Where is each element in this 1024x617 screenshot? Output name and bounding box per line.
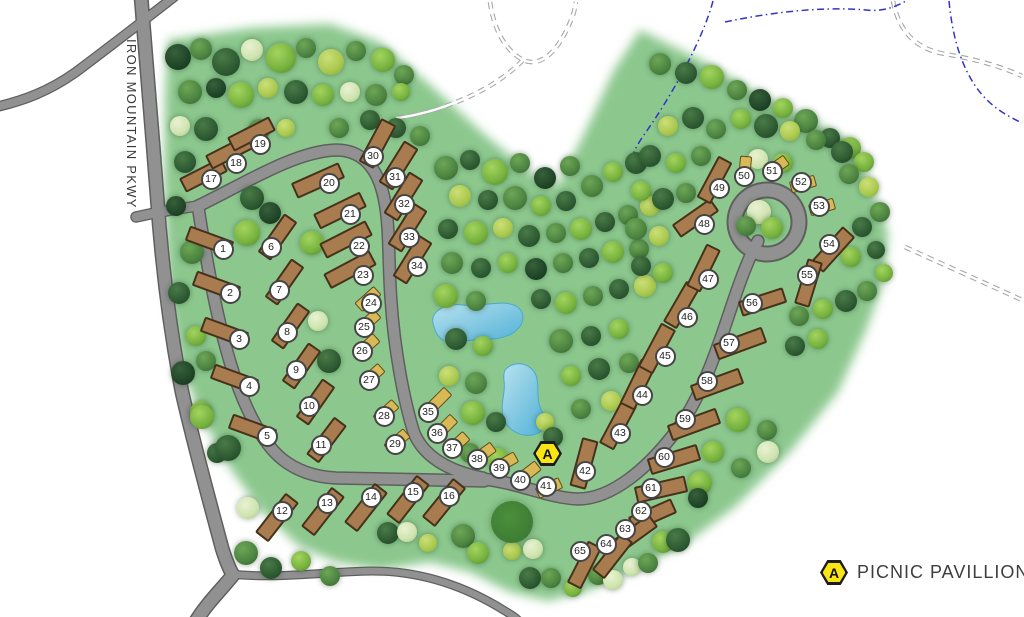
site-64-number: 64	[596, 534, 617, 555]
site-61-number: 61	[641, 478, 662, 499]
site-55-number: 55	[797, 265, 818, 286]
site-35-number: 35	[418, 402, 439, 423]
site-32-number: 32	[394, 194, 415, 215]
site-11-number: 11	[311, 435, 332, 456]
site-54-number: 54	[819, 234, 840, 255]
site-58-number: 58	[697, 371, 718, 392]
site-8-number: 8	[277, 322, 298, 343]
site-60-number: 60	[654, 447, 675, 468]
site-41-number: 41	[536, 476, 557, 497]
picnic-pavilion-marker-letter: A	[542, 446, 552, 462]
site-39-number: 39	[489, 458, 510, 479]
site-1-number: 1	[213, 239, 234, 260]
site-42-number: 42	[575, 461, 596, 482]
site-27-number: 27	[359, 370, 380, 391]
site-53-number: 53	[809, 196, 830, 217]
site-10-number: 10	[299, 396, 320, 417]
site-47-number: 47	[698, 269, 719, 290]
site-23-number: 23	[353, 265, 374, 286]
site-56-number: 56	[742, 293, 763, 314]
site-31-number: 31	[385, 167, 406, 188]
site-14-number: 14	[361, 487, 382, 508]
site-20-number: 20	[319, 173, 340, 194]
site-12-number: 12	[272, 501, 293, 522]
site-18-number: 18	[226, 153, 247, 174]
campground-site-map: 1234567891011121314151617181920212223242…	[0, 0, 1024, 617]
site-21-number: 21	[340, 204, 361, 225]
site-25-number: 25	[354, 317, 375, 338]
site-2-number: 2	[220, 283, 241, 304]
site-63-number: 63	[615, 519, 636, 540]
site-5-number: 5	[257, 426, 278, 447]
site-62-number: 62	[631, 501, 652, 522]
site-30-number: 30	[363, 146, 384, 167]
picnic-pavilion-legend-icon: A	[820, 560, 848, 585]
site-6-number: 6	[261, 237, 282, 258]
legend-icon-letter: A	[829, 565, 839, 581]
site-49-number: 49	[709, 178, 730, 199]
site-48-number: 48	[694, 214, 715, 235]
site-numbers-layer: 1234567891011121314151617181920212223242…	[0, 0, 1024, 617]
site-40-number: 40	[510, 470, 531, 491]
legend: A PICNIC PAVILLION	[820, 560, 1024, 585]
site-52-number: 52	[791, 172, 812, 193]
site-17-number: 17	[201, 169, 222, 190]
site-45-number: 45	[655, 346, 676, 367]
site-38-number: 38	[467, 449, 488, 470]
site-43-number: 43	[610, 423, 631, 444]
site-13-number: 13	[317, 493, 338, 514]
site-19-number: 19	[250, 134, 271, 155]
site-51-number: 51	[762, 161, 783, 182]
site-15-number: 15	[403, 482, 424, 503]
legend-label: PICNIC PAVILLION	[857, 562, 1024, 583]
site-3-number: 3	[229, 329, 250, 350]
site-4-number: 4	[239, 376, 260, 397]
site-37-number: 37	[442, 438, 463, 459]
site-29-number: 29	[385, 434, 406, 455]
site-50-number: 50	[734, 166, 755, 187]
road-label-iron-mountain-pkwy: IRON MOUNTAIN PKWY	[124, 39, 139, 199]
site-24-number: 24	[361, 293, 382, 314]
site-9-number: 9	[286, 360, 307, 381]
site-16-number: 16	[439, 486, 460, 507]
site-44-number: 44	[632, 385, 653, 406]
site-59-number: 59	[675, 409, 696, 430]
site-65-number: 65	[570, 541, 591, 562]
site-46-number: 46	[677, 307, 698, 328]
site-7-number: 7	[269, 280, 290, 301]
site-57-number: 57	[719, 333, 740, 354]
site-34-number: 34	[407, 256, 428, 277]
site-22-number: 22	[349, 236, 370, 257]
site-33-number: 33	[399, 227, 420, 248]
site-26-number: 26	[352, 341, 373, 362]
site-28-number: 28	[374, 406, 395, 427]
